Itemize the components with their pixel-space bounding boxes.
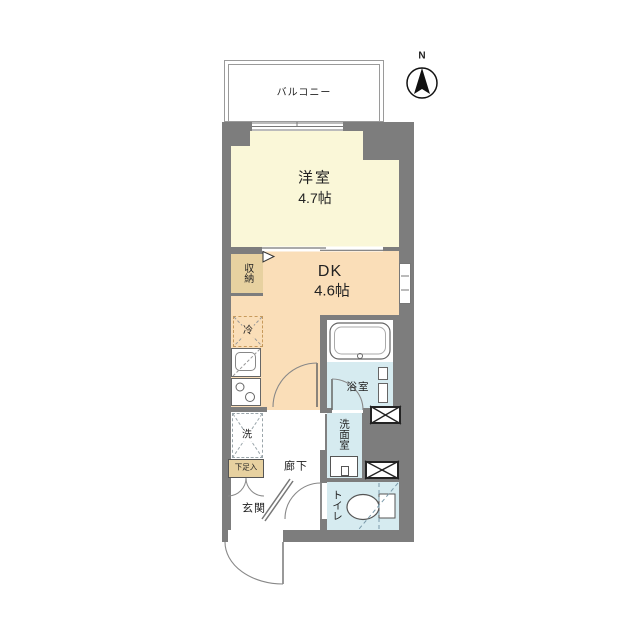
compass-north-label: N — [418, 50, 425, 62]
sliding-window-icon — [252, 122, 343, 131]
sink-diagonal-icon — [233, 349, 260, 376]
shoe-cabinet-label: 下足入 — [235, 464, 258, 473]
compass-icon — [407, 68, 437, 98]
toilet-door-icon — [285, 483, 321, 519]
entrance-step-lines — [262, 479, 293, 521]
pipe-space-cross-icons — [365, 406, 401, 479]
dk-size: 4.6帖 — [314, 282, 350, 299]
shoe-cabinet-doors-icon — [228, 478, 264, 496]
washroom-label: 洗面室 — [338, 418, 350, 450]
entrance-label: 玄関 — [242, 503, 266, 516]
bathtub-icon — [330, 323, 390, 359]
toilet-bowl-icon — [347, 483, 398, 529]
balcony-label: バルコニー — [277, 87, 332, 99]
storage-label: 収納 — [241, 263, 253, 283]
refrigerator-label: 冷 — [242, 325, 254, 337]
storage-arrow-icon — [263, 252, 274, 263]
western-room-size: 4.7帖 — [298, 190, 331, 206]
toilet-label: トイレ — [331, 489, 343, 521]
stove-burners-icon — [236, 383, 255, 402]
sliding-door-icon — [262, 247, 383, 252]
western-room-label: 洋室 — [298, 169, 332, 186]
floor-plan: N バルコニー 洋室 4.7帖 DK 4.6帖 収納 冷 浴室 洗面室 洗 下足… — [0, 0, 640, 640]
dk-door-icon — [273, 363, 317, 407]
entrance-door-icon — [225, 542, 283, 584]
bath-label: 浴室 — [347, 381, 370, 393]
laundry-label: 洗 — [241, 429, 253, 441]
corridor-label: 廊下 — [284, 461, 308, 474]
meter-box-ticks — [401, 276, 409, 290]
dk-label: DK — [318, 263, 342, 281]
